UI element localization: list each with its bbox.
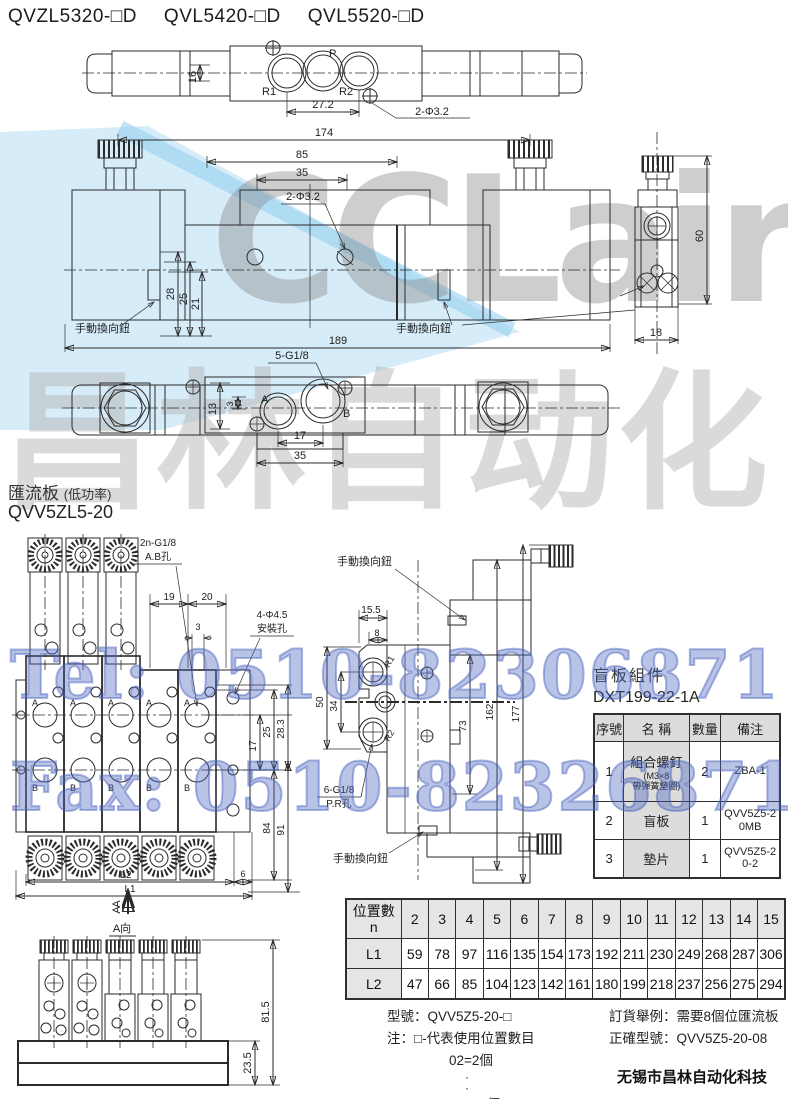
blank-plate-assembly: 盲板組件 DXT199-22-1A 序號 名 稱 數量 備注 1 組合螺釘 (M… <box>593 662 785 879</box>
section-title: 匯流板 (低功率) <box>8 479 111 504</box>
svg-text:A: A <box>184 698 190 708</box>
dim-label-84: 84 <box>262 822 273 834</box>
blank-plate-part-no: DXT199-22-1A <box>593 689 785 707</box>
manual-override-label-top: 手動換向鈕 <box>337 554 392 568</box>
valve-body-center <box>185 184 490 328</box>
l2-value-cell: 85 <box>456 969 483 1000</box>
dim-label-28-3: 28.3 <box>276 719 287 739</box>
table-row: 1 組合螺釘 (M3×8 帶彈簧墊圈) 2 ZBA-1 <box>594 742 780 802</box>
port-p-circle <box>303 51 343 91</box>
position-count-cell: 2 <box>401 899 428 939</box>
row-label-l2: L2 <box>346 969 401 1000</box>
order-example-last: 15=15個 <box>449 1094 535 1099</box>
dim-label-20: 20 <box>201 592 213 603</box>
l1-value-cell: 287 <box>730 939 757 969</box>
position-count-cell: 10 <box>620 899 647 939</box>
dim-label-35: 35 <box>296 167 308 179</box>
port-label-b: B <box>343 408 350 420</box>
screw-hole <box>644 213 670 239</box>
company-name: 无锡市昌林自动化科技 <box>617 1066 767 1087</box>
model-titles: QVZL5320-□D QVL5420-□D QVL5520-□D <box>8 6 425 28</box>
l1-value-cell: 173 <box>566 939 593 969</box>
dim-label-27-2: 27.2 <box>312 99 333 111</box>
manual-override-label-bottom: 手動換向鈕 <box>333 851 388 865</box>
position-count-cell: 5 <box>483 899 510 939</box>
dim-label-25: 25 <box>178 293 190 305</box>
l2-value-cell: 142 <box>538 969 565 1000</box>
thread-callout: 2n-G1/8 <box>140 538 177 549</box>
corner-sub-label: n <box>347 919 401 935</box>
l2-value-cell: 66 <box>428 969 455 1000</box>
valves-side-row <box>39 936 201 1048</box>
bottom-solenoid <box>419 826 561 883</box>
dim-label-3: 3 <box>225 401 235 406</box>
svg-text:B: B <box>32 783 38 793</box>
manifold-stations <box>16 656 250 832</box>
blank-plate-title: 盲板組件 <box>593 662 785 686</box>
l2-value-cell: 199 <box>620 969 647 1000</box>
port-r2-circle <box>340 52 378 90</box>
l2-value-cell: 161 <box>566 969 593 1000</box>
model-title-3: QVL5520-□D <box>308 6 425 28</box>
valve-bodies <box>30 534 136 670</box>
dim-label-73: 73 <box>458 720 469 732</box>
mount-callout-sub: 安裝孔 <box>257 622 287 635</box>
svg-text:B: B <box>108 783 114 793</box>
bp-cell-name: 墊片 <box>624 840 689 878</box>
corner-label: 位置數 <box>347 903 401 919</box>
hex-fitting-right <box>478 382 528 432</box>
bp-cell-qty: 2 <box>689 742 721 802</box>
l2-value-cell: 123 <box>511 969 538 1000</box>
order-note-line: 注：□-代表使用位置數目 <box>387 1028 535 1050</box>
port-label-a: A <box>261 394 269 406</box>
screw-hole <box>186 380 200 394</box>
screw-hole <box>338 381 352 395</box>
manual-override-left <box>148 270 160 300</box>
order-dots: · · <box>465 1072 535 1094</box>
bp-name-sub2: 帶彈簧墊圈) <box>625 781 687 791</box>
bp-name: 組合螺釘 <box>630 755 682 770</box>
dim-label-21: 21 <box>190 298 202 310</box>
thread-callout-sub: P.R孔 <box>326 798 351 810</box>
l1-value-cell: 59 <box>401 939 428 969</box>
l1-value-cell: 230 <box>648 939 675 969</box>
order-model-line: 型號：QVV5Z5-20-□ <box>387 1006 535 1028</box>
order-example-line: 訂貨舉例：需要8個位匯流板 <box>609 1006 779 1028</box>
valve-side-view-drawing: 60 18 <box>620 128 785 363</box>
position-count-cell: 6 <box>511 899 538 939</box>
order-example-first: 02=2個 <box>449 1050 535 1072</box>
port-label-r2: R2 <box>339 86 353 98</box>
table-row: L1 5978971161351541731922112302492682873… <box>346 939 785 969</box>
bp-cell-qty: 1 <box>689 840 721 878</box>
thread-callout: 5-G1/8 <box>275 350 309 362</box>
bp-header-name: 名 稱 <box>624 714 689 742</box>
bp-cell-note: QVV5Z5-20-2 <box>721 840 780 878</box>
dim-label-13: 13 <box>207 403 219 415</box>
position-count-cell: 8 <box>566 899 593 939</box>
blank-plate-table: 序號 名 稱 數量 備注 1 組合螺釘 (M3×8 帶彈簧墊圈) 2 ZBA-1… <box>593 713 781 879</box>
table-row: L2 4766851041231421611801992182372562752… <box>346 969 785 1000</box>
manifold-side-view-drawing: 手動換向鈕 R1 R2 15.5 8 50 34 73 162 <box>315 540 577 885</box>
dim-label-15-5: 15.5 <box>361 605 381 616</box>
svg-text:A: A <box>146 698 152 708</box>
dim-label-28: 28 <box>165 288 177 300</box>
dim-label-17c: 17 <box>248 740 259 752</box>
l1-value-cell: 78 <box>428 939 455 969</box>
l2-value-cell: 275 <box>730 969 757 1000</box>
screw-hole <box>337 249 353 265</box>
position-count-cell: 14 <box>730 899 757 939</box>
solenoid-right <box>483 140 610 320</box>
dim-label-35b: 35 <box>294 450 306 462</box>
svg-text:A: A <box>108 698 114 708</box>
l1-value-cell: 135 <box>511 939 538 969</box>
manual-override-label-right: 手動換向鈕 <box>396 321 451 335</box>
dim-label-19: 19 <box>163 592 175 603</box>
svg-text:B: B <box>146 783 152 793</box>
l1-value-cell: 97 <box>456 939 483 969</box>
bp-cell-no: 1 <box>594 742 624 802</box>
dim-label-16: 16 <box>187 71 199 83</box>
manual-override-label-left: 手動換向鈕 <box>75 321 130 335</box>
l1-value-cell: 306 <box>757 939 785 969</box>
l2-value-cell: 294 <box>757 969 785 1000</box>
hole-callout: 2-Φ3.2 <box>286 191 320 203</box>
model-title-2: QVL5420-□D <box>164 6 281 28</box>
l1-value-cell: 211 <box>620 939 647 969</box>
dim-label-85: 85 <box>296 149 308 161</box>
dim-label-18: 18 <box>650 327 662 339</box>
position-size-table: 位置數 n 23456789101112131415 L1 5978971161… <box>345 898 786 1000</box>
dim-label-34: 34 <box>329 700 340 712</box>
dim-label-174: 174 <box>315 127 333 139</box>
model-title-1: QVZL5320-□D <box>8 6 137 28</box>
bp-cell-no: 2 <box>594 802 624 840</box>
mount-callout: 4-Φ4.5 <box>257 610 288 621</box>
order-correct-line: 正確型號：QVV5Z5-20-08 <box>609 1028 779 1050</box>
svg-text:B: B <box>184 783 190 793</box>
section-title-note: (低功率) <box>64 487 112 502</box>
a-direction-view-drawing: A A向 81.5 23.5 <box>10 888 340 1093</box>
dim-label-162: 162 <box>485 703 496 720</box>
l2-value-cell: 104 <box>483 969 510 1000</box>
port-label-r1: R1 <box>262 86 276 98</box>
port-label-r1: R1 <box>382 654 396 669</box>
valve-front-view-drawing: 174 85 35 2-Φ3.2 28 25 21 1 <box>60 118 635 353</box>
l1-value-cell: 249 <box>675 939 702 969</box>
bp-cell-note: ZBA-1 <box>721 742 780 802</box>
position-count-cell: 4 <box>456 899 483 939</box>
position-count-cell: 15 <box>757 899 785 939</box>
l2-value-cell: 237 <box>675 969 702 1000</box>
dim-label-3b: 3 <box>195 622 200 632</box>
l1-value-cell: 268 <box>703 939 730 969</box>
manifold-top-view-drawing: A A A A A B B B B B 2n-G1/8 A.B孔 19 20 3… <box>8 530 338 908</box>
position-count-cell: 11 <box>648 899 675 939</box>
svg-text:A: A <box>70 698 76 708</box>
l2-value-cell: 180 <box>593 969 620 1000</box>
l1-value-cell: 192 <box>593 939 620 969</box>
dim-label-50: 50 <box>315 696 326 708</box>
l1-value-cell: 116 <box>483 939 510 969</box>
dim-label-60: 60 <box>694 230 706 242</box>
svg-text:B: B <box>70 783 76 793</box>
bp-cell-note: QVV5Z5-20MB <box>721 802 780 840</box>
bp-cell-no: 3 <box>594 840 624 878</box>
a-view-label: A向 <box>113 921 131 935</box>
dim-label-6: 6 <box>240 869 245 879</box>
dim-label-17: 17 <box>294 430 306 442</box>
datasheet-page: { "header": {"models": ["QVZL5320-□D", "… <box>0 0 788 1099</box>
dim-label-81-5: 81.5 <box>260 1001 272 1022</box>
manifold-body <box>387 645 460 833</box>
l1-value-cell: 154 <box>538 939 565 969</box>
svg-text:A: A <box>32 698 38 708</box>
screw-hole <box>265 40 281 56</box>
hole-callout: 2-Φ3.2 <box>415 106 449 118</box>
top-solenoid <box>448 545 573 655</box>
table-row: 2 盲板 1 QVV5Z5-20MB <box>594 802 780 840</box>
position-count-cell: 3 <box>428 899 455 939</box>
dim-label-23-5: 23.5 <box>242 1052 254 1073</box>
dim-label-25c: 25 <box>262 726 273 738</box>
l2-value-cell: 47 <box>401 969 428 1000</box>
dim-label-91: 91 <box>276 824 287 836</box>
position-count-cell: 9 <box>593 899 620 939</box>
bp-cell-name: 組合螺釘 (M3×8 帶彈簧墊圈) <box>624 742 689 802</box>
table-row: 位置數 n 23456789101112131415 <box>346 899 785 939</box>
view-arrow-label: A <box>111 906 123 914</box>
table-row: 3 墊片 1 QVV5Z5-20-2 <box>594 840 780 878</box>
valve-top-view-drawing: R1 P R2 16 27.2 2-Φ3.2 <box>82 34 587 126</box>
dim-label-L2: L2 <box>120 870 132 881</box>
bp-name-sub: (M3×8 <box>625 771 687 781</box>
section-model: QVV5ZL5-20 <box>8 502 113 523</box>
valve-bottom-view-drawing: A B 5-G1/8 13 3 17 35 <box>60 345 625 480</box>
section-title-text: 匯流板 <box>8 484 59 503</box>
bp-cell-qty: 1 <box>689 802 721 840</box>
bp-header-note: 備注 <box>721 714 780 742</box>
position-count-cell: 12 <box>675 899 702 939</box>
screw-hole <box>362 88 378 104</box>
bp-header-no: 序號 <box>594 714 624 742</box>
position-count-cell: 7 <box>538 899 565 939</box>
manual-override-right <box>438 270 450 300</box>
l2-value-cell: 218 <box>648 969 675 1000</box>
thread-callout: 6-G1/8 <box>324 785 355 796</box>
thread-callout-sub: A.B孔 <box>145 551 171 563</box>
l2-value-cell: 256 <box>703 969 730 1000</box>
dim-label-8: 8 <box>374 628 379 638</box>
manifold-base <box>18 1041 228 1085</box>
row-label-l1: L1 <box>346 939 401 969</box>
port-b-circle <box>301 379 345 423</box>
station-port-labels: A A A A A B B B B B <box>32 698 190 793</box>
dim-label-177: 177 <box>511 705 522 722</box>
bp-cell-name: 盲板 <box>624 802 689 840</box>
table-corner-cell: 位置數 n <box>346 899 401 939</box>
port-label-p: P <box>329 48 336 60</box>
bp-header-qty: 數量 <box>689 714 721 742</box>
position-count-cell: 13 <box>703 899 730 939</box>
